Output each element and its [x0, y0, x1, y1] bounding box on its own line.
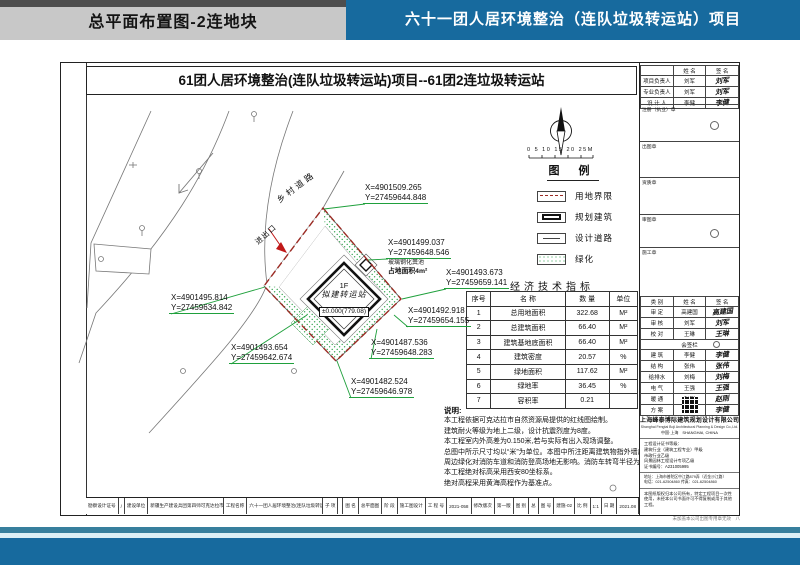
bottombar-value: 施工图设计 — [398, 498, 426, 514]
bottombar-key: 阶 段 — [382, 498, 397, 514]
sign-header-cell: 签 名 — [706, 297, 739, 307]
legend-item: 用地界限 — [531, 190, 646, 202]
sign-row: 结 构张伟张伟 — [641, 361, 739, 372]
stamp-label: 注册（执业）章 — [642, 106, 676, 113]
signature-mark: 刘军 — [715, 87, 730, 98]
header-dark-strip — [0, 0, 346, 7]
building-glyph — [542, 214, 561, 220]
note-line: 周边绿化对消防车道和消防登高场地无影响。消防车转弯半径为9米。 — [444, 458, 640, 468]
coord-x: X=4901499.037 — [388, 238, 449, 248]
personnel-name: 刘军 — [673, 87, 706, 98]
company-block: 上海峰泰博际建筑规划设计有限公司 Shanghai Fengtai Boji A… — [640, 397, 739, 507]
eco-cell: 322.68 — [565, 306, 609, 321]
cosign-label: 会签栏 — [681, 343, 698, 349]
sign-row: 校 对王琳王琳 — [641, 329, 739, 340]
sign-header-cell: 类 别 — [641, 297, 674, 307]
sign-name: 王强 — [673, 383, 706, 394]
stamp-label: 资质章 — [642, 179, 656, 186]
coord-y: Y=27459648.546 — [388, 248, 449, 258]
legend-title: 图 例 — [547, 162, 599, 181]
bottombar-key: 修改版次 — [472, 498, 495, 514]
sign-role: 结 构 — [641, 361, 674, 372]
eco-cell: 36.45 — [565, 379, 609, 394]
sheet-title: 61团人居环境整治(连队垃圾转运站)项目--61团2连垃圾转运站 — [86, 66, 637, 95]
header-left-title: 总平面布置图-2连地块 — [0, 7, 346, 40]
eco-cell: 3 — [467, 335, 491, 350]
legend-items: 用地界限规划建筑设计道路绿化 — [531, 190, 646, 265]
notes: 说明: 本工程依据可克达拉市自然资源局提供的红线图绘制。建筑耐火等级为地上二级，… — [444, 406, 640, 489]
sign-name: 高建国 — [673, 307, 706, 318]
coord-label: X=4901492.918Y=27459654.155 — [406, 306, 471, 327]
note-line: 本工程室内外高差为0.150米,若与实际有出入现场调整。 — [444, 437, 640, 447]
header-left-panel: 总平面布置图-2连地块 — [0, 0, 346, 40]
signature-mark: 张伟 — [715, 361, 730, 372]
cert-line: 证书编号：A231005995 — [644, 464, 736, 470]
coord-y: Y=27459646.978 — [351, 387, 412, 397]
bottombar-key: 日 期 — [602, 498, 617, 514]
personnel-header-cell — [641, 66, 674, 76]
coord-label: X=4901499.037Y=27459648.546 — [386, 238, 451, 259]
sign-row: 审 定高建国高建国 — [641, 307, 739, 318]
stamp-section: 出图章 — [640, 141, 739, 177]
eco-row: 4建筑密度20.57% — [467, 350, 638, 365]
sign-name: 李健 — [673, 350, 706, 361]
eco-cell: 建筑密度 — [491, 350, 565, 365]
notes-lines: 本工程依据可克达拉市自然资源局提供的红线图绘制。建筑耐火等级为地上二级，设计抗震… — [444, 416, 640, 489]
bottombar-key: 子 项 — [323, 498, 338, 514]
bottombar-value: 六十一团人居环境整治(连队垃圾转运站)项目 — [247, 498, 323, 514]
stamp-label: 出图章 — [642, 143, 656, 150]
footer-bar — [0, 538, 800, 565]
sign-row: 给排水刘梅刘梅 — [641, 372, 739, 383]
road-glyph — [543, 238, 560, 239]
signature-mark: 王琳 — [715, 329, 730, 340]
legend: 图 例 用地界限规划建筑设计道路绿化 — [531, 162, 646, 265]
eco-cell: 总用地面积 — [491, 306, 565, 321]
eco-cell: 建筑基地底面积 — [491, 335, 565, 350]
building-elevation: ±0.000(779.08) — [319, 307, 369, 317]
coord-label: X=4901487.536Y=27459648.283 — [369, 338, 434, 359]
eco-cell: 绿地面积 — [491, 364, 565, 379]
sign-signature: 刘梅 — [706, 372, 739, 383]
company-name-en: Shanghai Fengtai Boji Architectural Plan… — [640, 425, 739, 429]
eco-cell: % — [609, 350, 637, 365]
company-disclaimer: 本图纸版权归本公司所有，特定工程项目一次性使用，未经本公司书面许可不得复制或用于… — [640, 488, 739, 507]
sign-signature: 张伟 — [706, 361, 739, 372]
personnel-header-cell: 姓 名 — [673, 66, 706, 76]
sign-name: 王琳 — [673, 329, 706, 340]
building-name: 拟建转运站 — [308, 290, 380, 300]
sign-signature: 刘军 — [706, 318, 739, 329]
sign-signature: 王强 — [706, 383, 739, 394]
sign-row: 建 筑李健李健 — [641, 350, 739, 361]
company-location: 中国·上海 SHANGHAI, CHINA — [640, 430, 739, 439]
company-logo — [682, 397, 698, 413]
stamp-section: 注册（执业）章 — [640, 104, 739, 141]
bottombar-value: 2021.08 — [617, 498, 639, 514]
sign-name: 刘梅 — [673, 372, 706, 383]
septic-area: 占地面积4m² — [388, 268, 427, 275]
bottombar-value: 1:1 — [591, 498, 602, 514]
company-contact: 地址：上海市普陀区中江路879弄（近金沙江路）电话：021-62504860 传… — [640, 472, 739, 485]
bottombar-key: 工程名称 — [224, 498, 247, 514]
personnel-signature: 刘军 — [706, 76, 739, 87]
eco-row: 5绿地面积117.62M² — [467, 364, 638, 379]
company-certs: 工程设计证书等级：建筑行业（建筑工程专业）甲级市政行业乙级风景园林工程设计专项乙… — [640, 439, 739, 470]
personnel-role: 项目负责人 — [641, 76, 674, 87]
personnel-role: 专业负责人 — [641, 87, 674, 98]
legend-item: 设计道路 — [531, 232, 646, 244]
eco-cell: 绿地率 — [491, 379, 565, 394]
signature-mark: 李健 — [715, 350, 730, 361]
coord-y: Y=27459642.674 — [231, 353, 292, 363]
coord-x: X=4901492.918 — [408, 306, 469, 316]
signature-mark: 刘梅 — [715, 372, 730, 383]
personnel-name: 刘军 — [673, 76, 706, 87]
sign-row: 电 气王强王强 — [641, 383, 739, 394]
personnel-header-cell: 签 名 — [706, 66, 739, 76]
sign-name: 张伟 — [673, 361, 706, 372]
road-swatch — [537, 233, 566, 244]
coord-label: X=4901495.814Y=27459634.842 — [169, 293, 234, 314]
bottombar-value: 第一版 — [495, 498, 514, 514]
building-swatch — [537, 212, 566, 223]
note-line: 总图中所示尺寸均以“米”为单位。本图中所注距离建筑物指外墙皮。 — [444, 448, 640, 458]
bottombar-value: 总平面图 — [359, 498, 382, 514]
personnel-header-row: 姓 名签 名 — [641, 66, 739, 76]
contact-line: 电话：021-62504860 传真：021-62504860 — [644, 480, 736, 485]
personnel-row: 项目负责人刘军刘军 — [641, 76, 739, 87]
seal-mark — [710, 229, 719, 238]
eco-cell: 117.62 — [565, 364, 609, 379]
header-right-title: 六十一团人居环境整治（连队垃圾转运站）项目 — [346, 0, 800, 40]
sign-signature: 高建国 — [706, 307, 739, 318]
bottombar-key: 比 例 — [575, 498, 590, 514]
below-sheet-note: 未加盖本公司出图专用章无效 八 — [600, 516, 740, 522]
coord-label: X=4901509.265Y=27459644.848 — [363, 183, 428, 204]
legend-label: 设计道路 — [575, 232, 613, 244]
note-line: 本工程绝对标高采用西安80坐标系。 — [444, 468, 640, 478]
signature-mark: 高建国 — [711, 307, 733, 318]
signature-mark: 王强 — [715, 383, 730, 394]
bottombar-value: 总 — [529, 498, 539, 514]
personnel-table-wrap: 姓 名签 名项目负责人刘军刘军专业负责人刘军刘军设 计 人李健李健 — [640, 65, 739, 109]
sign-role: 校 对 — [641, 329, 674, 340]
eco-cell: M² — [609, 335, 637, 350]
legend-label: 规划建筑 — [575, 211, 613, 223]
coord-label: X=4901493.673Y=27459659.141 — [444, 268, 509, 289]
eco-header-cell: 序号 — [467, 292, 491, 307]
sign-signature: 李健 — [706, 350, 739, 361]
septic-label: 玻璃钢化粪池 占地面积4m² — [388, 260, 427, 276]
eco-cell: M² — [609, 364, 637, 379]
legend-item: 绿化 — [531, 253, 646, 265]
coord-label: X=4901493.654Y=27459642.674 — [229, 343, 294, 364]
eco-cell: 6 — [467, 379, 491, 394]
page: 总平面布置图-2连地块 六十一团人居环境整治（连队垃圾转运站）项目 — [0, 0, 800, 565]
coord-leader — [402, 289, 446, 299]
personnel-row: 专业负责人刘军刘军 — [641, 87, 739, 98]
coord-leader — [324, 204, 365, 209]
sign-role: 建 筑 — [641, 350, 674, 361]
coord-y: Y=27459644.848 — [365, 193, 426, 203]
legend-label: 绿化 — [575, 253, 594, 265]
bottombar-key: 勘察设计证号 — [86, 498, 119, 514]
stamp-section: 审图章 — [640, 214, 739, 247]
sign-header-cell: 姓 名 — [673, 297, 706, 307]
stamp-label: 施工章 — [642, 249, 656, 256]
sign-name: 刘军 — [673, 318, 706, 329]
company-name: 上海峰泰博际建筑规划设计有限公司 — [640, 415, 739, 424]
eco-header-cell: 数 量 — [565, 292, 609, 307]
sign-signature: 王琳 — [706, 329, 739, 340]
eco-cell: 66.40 — [565, 321, 609, 336]
coord-y: Y=27459634.842 — [171, 303, 232, 313]
coord-y: Y=27459648.283 — [371, 348, 432, 358]
notes-title: 说明: — [444, 406, 640, 416]
cosign-cell: 会签栏 — [641, 340, 739, 350]
eco-header-cell: 名 称 — [491, 292, 565, 307]
eco-cell: 20.57 — [565, 350, 609, 365]
bottombar-key: 图 号 — [539, 498, 554, 514]
building-floor: 1F — [308, 281, 380, 290]
sign-role: 审 核 — [641, 318, 674, 329]
eco-cell: 总建筑面积 — [491, 321, 565, 336]
eco-cell: M² — [609, 321, 637, 336]
coord-x: X=4901509.265 — [365, 183, 426, 193]
legend-item: 规划建筑 — [531, 211, 646, 223]
septic-name: 玻璃钢化粪池 — [388, 260, 427, 268]
boundary-swatch — [537, 191, 566, 202]
bottombar-key: 图 别 — [514, 498, 529, 514]
coord-y: Y=27459659.141 — [446, 278, 507, 288]
legend-label: 用地界限 — [575, 190, 613, 202]
green-swatch — [537, 254, 566, 265]
eco-header-row: 序号名 称数 量单位 — [467, 292, 638, 307]
bottombar-key: 图 名 — [343, 498, 358, 514]
personnel-signature: 刘军 — [706, 87, 739, 98]
personnel-table: 姓 名签 名项目负责人刘军刘军专业负责人刘军刘军设 计 人李健李健 — [640, 65, 739, 109]
sign-row: 审 核刘军刘军 — [641, 318, 739, 329]
coord-x: X=4901495.814 — [171, 293, 232, 303]
coord-y: Y=27459654.155 — [408, 316, 469, 326]
eco-header-cell: 单位 — [609, 292, 637, 307]
boundary-glyph — [540, 195, 563, 196]
signature-mark: 刘军 — [715, 318, 730, 329]
sign-role: 电 气 — [641, 383, 674, 394]
eco-row: 3建筑基地底面积66.40M² — [467, 335, 638, 350]
drawing-sheet: 61团人居环境整治(连队垃圾转运站)项目--61团2连垃圾转运站 乡村道路 进出… — [60, 62, 740, 516]
coord-x: X=4901482.524 — [351, 377, 412, 387]
eco-row: 6绿地率36.45% — [467, 379, 638, 394]
eco-cell: 66.40 — [565, 335, 609, 350]
eco-cell: % — [609, 379, 637, 394]
coord-x: X=4901487.536 — [371, 338, 432, 348]
seal-mark — [710, 121, 719, 130]
bottombar-value: 建施-02 — [554, 498, 575, 514]
stamp-section: 资质章 — [640, 177, 739, 214]
sign-header-row: 类 别姓 名签 名 — [641, 297, 739, 307]
bottombar-value: 新疆生产建设兵团第四师可克达拉市六十一团 — [148, 498, 224, 514]
scale-label: 0 5 10 15 20 25M — [527, 147, 597, 153]
signature-mark: 刘军 — [715, 76, 730, 87]
eco-cell: 4 — [467, 350, 491, 365]
road-arrow — [179, 153, 213, 193]
stamp-section: 施工章 — [640, 247, 739, 279]
note-line: 绝对高程采用黄海高程作为基准点。 — [444, 479, 640, 489]
cosign-seal — [713, 341, 720, 348]
title-block: 姓 名签 名项目负责人刘军刘军专业负责人刘军刘军设 计 人李健李健 注册（执业）… — [639, 63, 739, 515]
coord-label: X=4901482.524Y=27459646.978 — [349, 377, 414, 398]
eco-table: 序号名 称数 量单位1总用地面积322.68M²2总建筑面积66.40M²3建筑… — [466, 291, 638, 409]
bottombar-key: 建设单位 — [125, 498, 148, 514]
stamp-label: 审图章 — [642, 216, 656, 223]
eco-cell: 5 — [467, 364, 491, 379]
building-label: 1F 拟建转运站 ±0.000(779.08) — [308, 281, 380, 318]
scale-bar — [529, 155, 593, 158]
sign-role: 给排水 — [641, 372, 674, 383]
note-line: 本工程依据可克达拉市自然资源局提供的红线图绘制。 — [444, 416, 640, 426]
coord-x: X=4901493.654 — [231, 343, 292, 353]
coord-x: X=4901493.673 — [446, 268, 507, 278]
bottombar-key: 工 程 号 — [426, 498, 447, 514]
bottombar-value: 2021-058 — [447, 498, 471, 514]
note-line: 建筑耐火等级为地上二级，设计抗震烈度为8度。 — [444, 427, 640, 437]
eco-row: 1总用地面积322.68M² — [467, 306, 638, 321]
eco-cell: M² — [609, 306, 637, 321]
sign-role: 审 定 — [641, 307, 674, 318]
cosign-row: 会签栏 — [641, 340, 739, 350]
bottom-field-bar: 勘察设计证号/建设单位新疆生产建设兵团第四师可克达拉市六十一团工程名称六十一团人… — [86, 497, 639, 514]
eco-row: 2总建筑面积66.40M² — [467, 321, 638, 336]
